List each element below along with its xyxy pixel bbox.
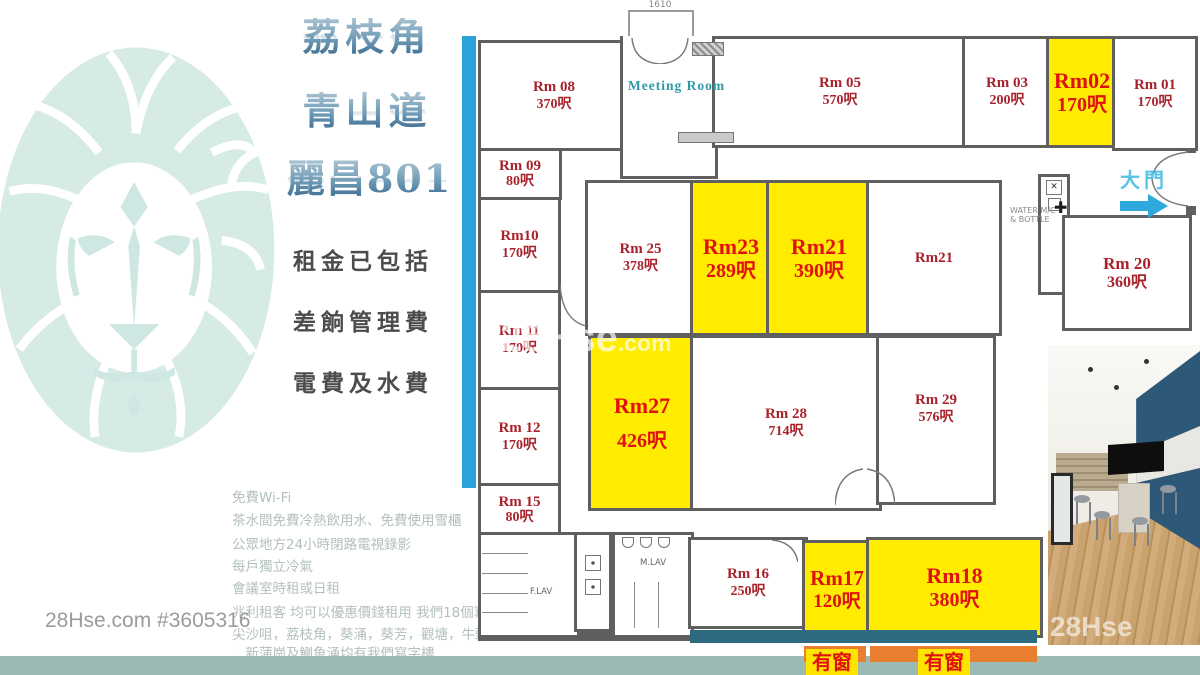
- sink-icon: [585, 579, 601, 595]
- room-size: 380呎: [930, 590, 980, 610]
- room-label: Rm 16: [727, 567, 769, 582]
- room-size: 714呎: [769, 425, 804, 439]
- room-label: Rm21: [791, 236, 847, 258]
- room-rm23: Rm23 289呎: [690, 180, 772, 336]
- site-watermark-main: 28Hse: [500, 316, 618, 360]
- male-lavatory-label: M.LAV: [640, 559, 666, 568]
- plant-icon: ✚: [1054, 200, 1067, 216]
- window-badge-left-label: 有窗: [812, 652, 852, 672]
- meeting-room-label: Meeting Room: [628, 79, 738, 93]
- room-size: 170呎: [502, 439, 537, 453]
- room-rm01: Rm 01 170呎: [1112, 36, 1198, 151]
- room-rm21-white: Rm21: [866, 180, 1002, 336]
- photo-stool: [1160, 485, 1176, 515]
- room-label: Rm 05: [819, 76, 861, 91]
- room-size: 576呎: [919, 411, 954, 425]
- rates-management-fee: 差餉管理費: [288, 311, 438, 334]
- rm16-door-arc: [772, 540, 798, 562]
- room-rm21-highlight: Rm21 390呎: [766, 180, 872, 336]
- room-rm18: Rm18 380呎: [866, 537, 1043, 638]
- interior-photo: 28Hse: [1048, 345, 1200, 645]
- room-label: Rm17: [810, 568, 864, 589]
- feature-meeting-room-rental: 會議室時租或日租: [232, 581, 482, 597]
- room-label: Rm 15: [498, 495, 540, 510]
- urinal-icon: [658, 537, 670, 548]
- main-entrance-label: 大門: [1112, 170, 1176, 190]
- room-size: 170呎: [1057, 95, 1107, 115]
- room-label: Rm 08: [533, 80, 575, 95]
- room-rm08: Rm 08 370呎: [478, 40, 630, 151]
- feature-cctv: 公眾地方24小時閉路電視錄影: [232, 537, 482, 553]
- window-badge-right: 有窗: [918, 649, 970, 675]
- feature-locations-1: 尖沙咀，荔枝角，葵涌，葵芳，觀塘，牛頭角: [232, 627, 482, 643]
- room-rm15: Rm 15 80呎: [478, 483, 561, 536]
- male-lavatory: [612, 532, 694, 638]
- room-label: Rm21: [915, 251, 953, 266]
- feature-tenant-discount: 兆利租客 均可以優惠價錢租用 我們18個寫字: [232, 605, 482, 621]
- room-size: 170呎: [1138, 96, 1173, 110]
- female-lavatory-label: F.LAV: [530, 588, 552, 597]
- stall-divider: [658, 582, 659, 628]
- room-label: Rm27: [614, 395, 670, 417]
- room-rm27: Rm27 426呎: [588, 335, 696, 511]
- urinal-icon: [640, 537, 652, 548]
- room-label: Rm 29: [915, 393, 957, 408]
- main-double-door-bump: [628, 10, 694, 39]
- stall-divider: [634, 582, 635, 628]
- site-watermark-suffix: .com: [618, 330, 672, 356]
- room-size: 80呎: [506, 175, 534, 189]
- building-district: 荔枝角: [262, 18, 472, 56]
- room-size: 378呎: [623, 260, 658, 274]
- room-size: 370呎: [537, 98, 572, 112]
- window-badge-right-label: 有窗: [924, 652, 964, 672]
- room-size: 390呎: [794, 261, 844, 281]
- photo-tv: [1108, 441, 1164, 475]
- table: [678, 132, 734, 143]
- photo-stool: [1132, 517, 1148, 547]
- stall-divider: [482, 593, 528, 594]
- double-door-arc: [630, 38, 690, 64]
- electricity-water-fee: 電費及水費: [288, 372, 438, 395]
- entrance-arrow-icon: [1120, 194, 1168, 218]
- room-size: 200呎: [990, 94, 1025, 108]
- room-size: 120呎: [813, 592, 861, 611]
- room-rm20: Rm 20 360呎: [1062, 215, 1192, 331]
- stall-divider: [482, 612, 528, 613]
- room-label: Rm 12: [498, 421, 540, 436]
- window-badge-left: 有窗: [806, 649, 858, 675]
- service-shaft: [574, 532, 612, 632]
- listing-reference: 28Hse.com #3605316: [45, 610, 250, 631]
- room-label: Rm23: [703, 236, 759, 258]
- room-label: Rm10: [500, 229, 538, 244]
- lion-logo: [0, 34, 284, 466]
- room-size: 289呎: [706, 261, 756, 281]
- feature-pantry: 茶水間免費冷熱飲用水、免費使用雪櫃: [232, 513, 482, 529]
- room-label: Rm18: [926, 565, 982, 587]
- site-watermark: 28Hse.com: [500, 318, 672, 358]
- room-rm09: Rm 09 80呎: [478, 148, 562, 200]
- room-rm03: Rm 03 200呎: [962, 36, 1052, 148]
- building-street: 青山道: [262, 92, 472, 130]
- room-label: Rm 25: [619, 242, 661, 257]
- room-size: 360呎: [1107, 275, 1147, 291]
- room-label: Rm 01: [1134, 78, 1176, 93]
- room-rm12: Rm 12 170呎: [478, 387, 561, 486]
- female-lavatory: [478, 532, 580, 638]
- left-window-strip: [462, 36, 476, 488]
- room-rm05: Rm 05 570呎: [712, 36, 968, 148]
- photo-ceiling-light: [1144, 359, 1149, 364]
- photo-ceiling-light: [1114, 385, 1119, 390]
- sink-icon: [585, 555, 601, 571]
- feature-aircon: 每戶獨立冷氣: [232, 559, 482, 575]
- bottom-window-wall: [690, 630, 1037, 643]
- room-label: Rm 20: [1103, 255, 1151, 272]
- room-rm17: Rm17 120呎: [802, 540, 872, 638]
- water-machine-icon: ✕: [1046, 180, 1062, 195]
- feature-wifi: 免費Wi-Fi: [232, 490, 482, 506]
- desk: [692, 42, 724, 56]
- room-rm25: Rm 25 378呎: [585, 180, 696, 336]
- stall-divider: [482, 573, 528, 574]
- photo-watermark: 28Hse: [1050, 613, 1133, 641]
- stall-divider: [482, 553, 528, 554]
- rent-includes-heading: 租金已包括: [288, 250, 438, 273]
- room-label: Rm02: [1054, 70, 1110, 92]
- building-name-unit: 麗昌801: [262, 160, 477, 198]
- room-size: 426呎: [617, 431, 667, 451]
- listing-image: 荔枝角 青山道 麗昌801 租金已包括 差餉管理費 電費及水費 免費Wi-Fi …: [0, 0, 1200, 675]
- room-size: 170呎: [502, 247, 537, 261]
- room-label: Rm 28: [765, 407, 807, 422]
- urinal-icon: [622, 537, 634, 548]
- photo-ceiling-light: [1088, 367, 1093, 372]
- room-rm10: Rm10 170呎: [478, 197, 561, 293]
- room-size: 570呎: [823, 94, 858, 108]
- room-label: Rm 09: [499, 159, 541, 174]
- photo-stool: [1074, 495, 1090, 525]
- room-rm02: Rm02 170呎: [1046, 36, 1118, 148]
- room-label: Rm 03: [986, 76, 1028, 91]
- room-size: 250呎: [731, 585, 766, 599]
- room-size: 80呎: [506, 511, 534, 525]
- door-dimension-label: 1610: [628, 1, 692, 10]
- corridor-double-door-arc: [835, 467, 895, 505]
- photo-stool: [1094, 511, 1110, 541]
- photo-mirror: [1051, 473, 1073, 545]
